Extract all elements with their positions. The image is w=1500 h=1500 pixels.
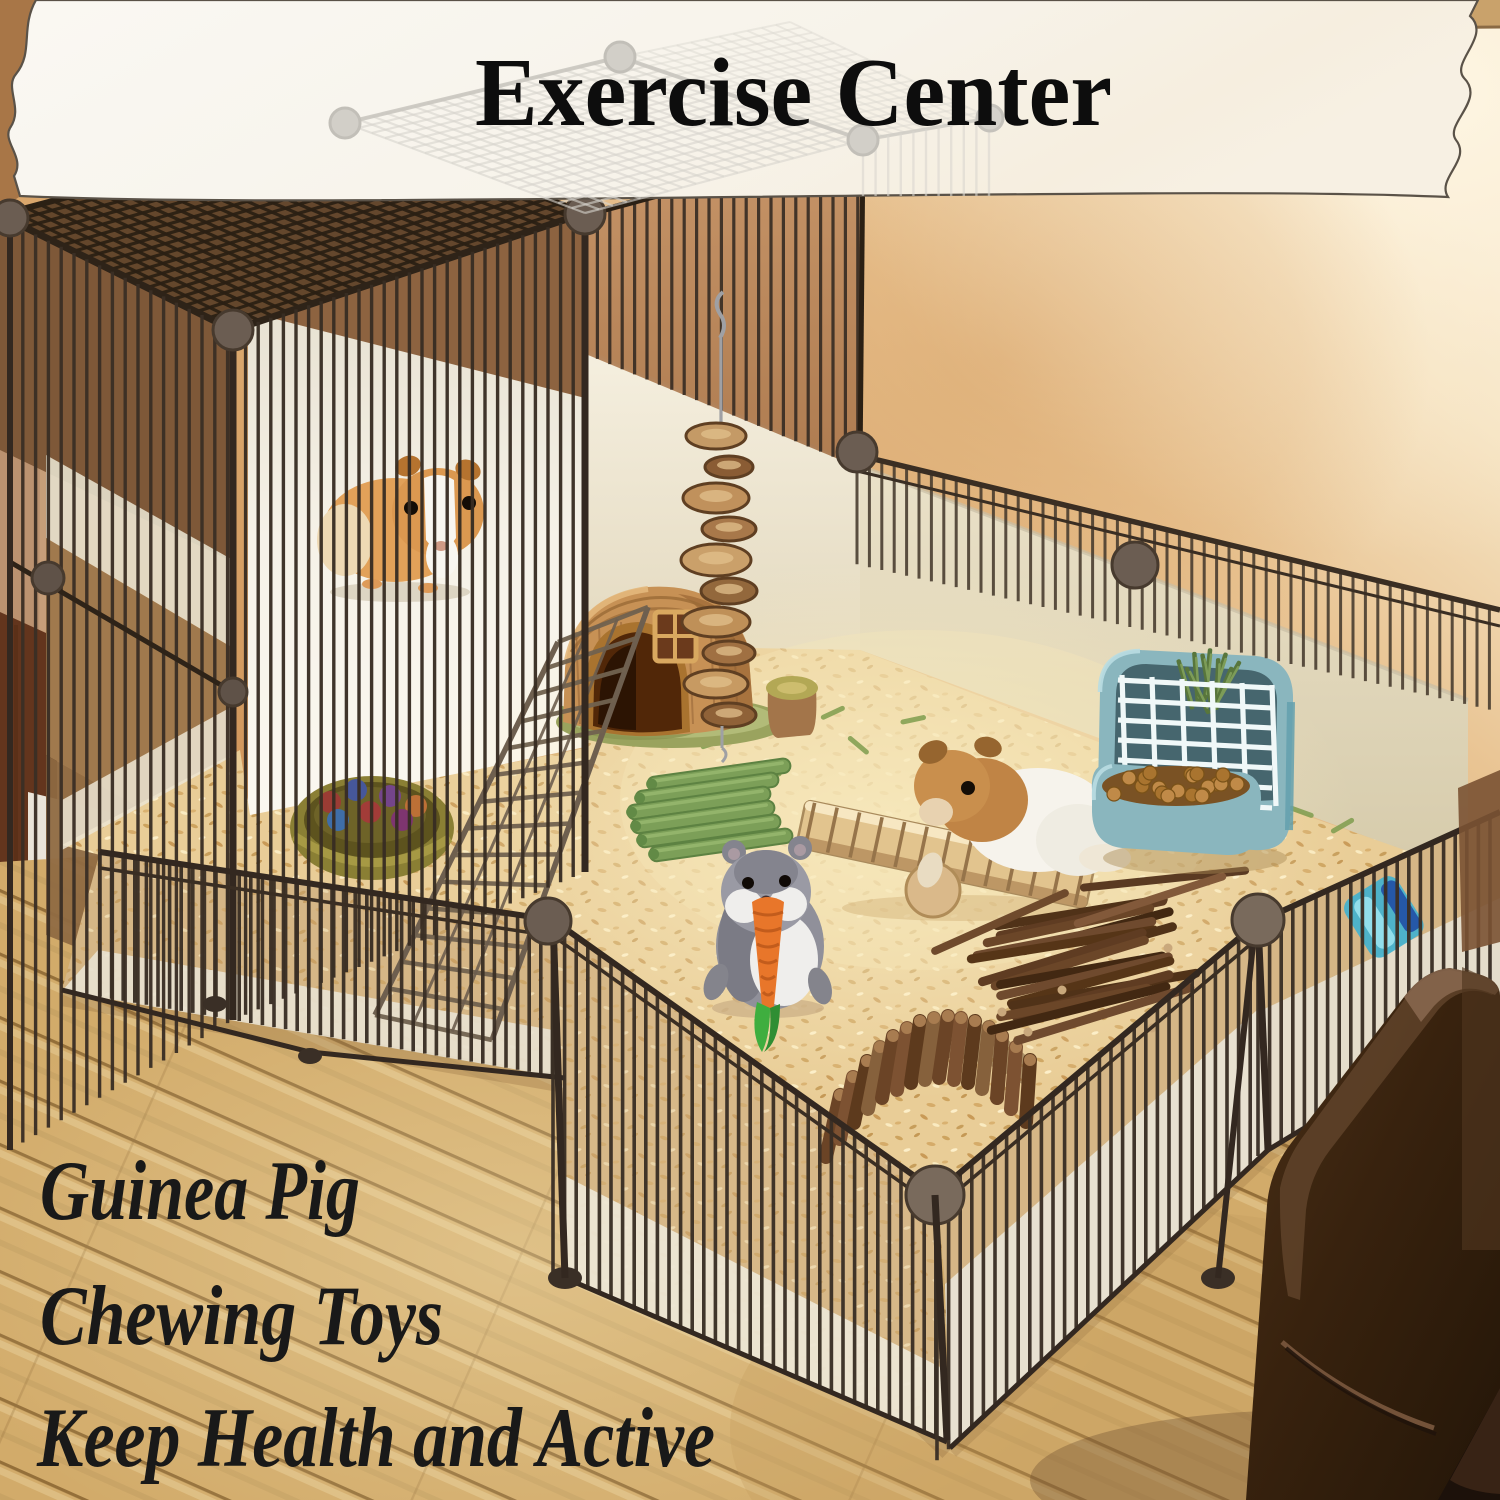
svg-text:Guinea Pig: Guinea Pig: [40, 1144, 360, 1238]
svg-text:Chewing Toys: Chewing Toys: [40, 1269, 443, 1363]
svg-text:Keep Health and Active: Keep Health and Active: [36, 1391, 715, 1485]
svg-text:Exercise Center: Exercise Center: [475, 39, 1112, 146]
